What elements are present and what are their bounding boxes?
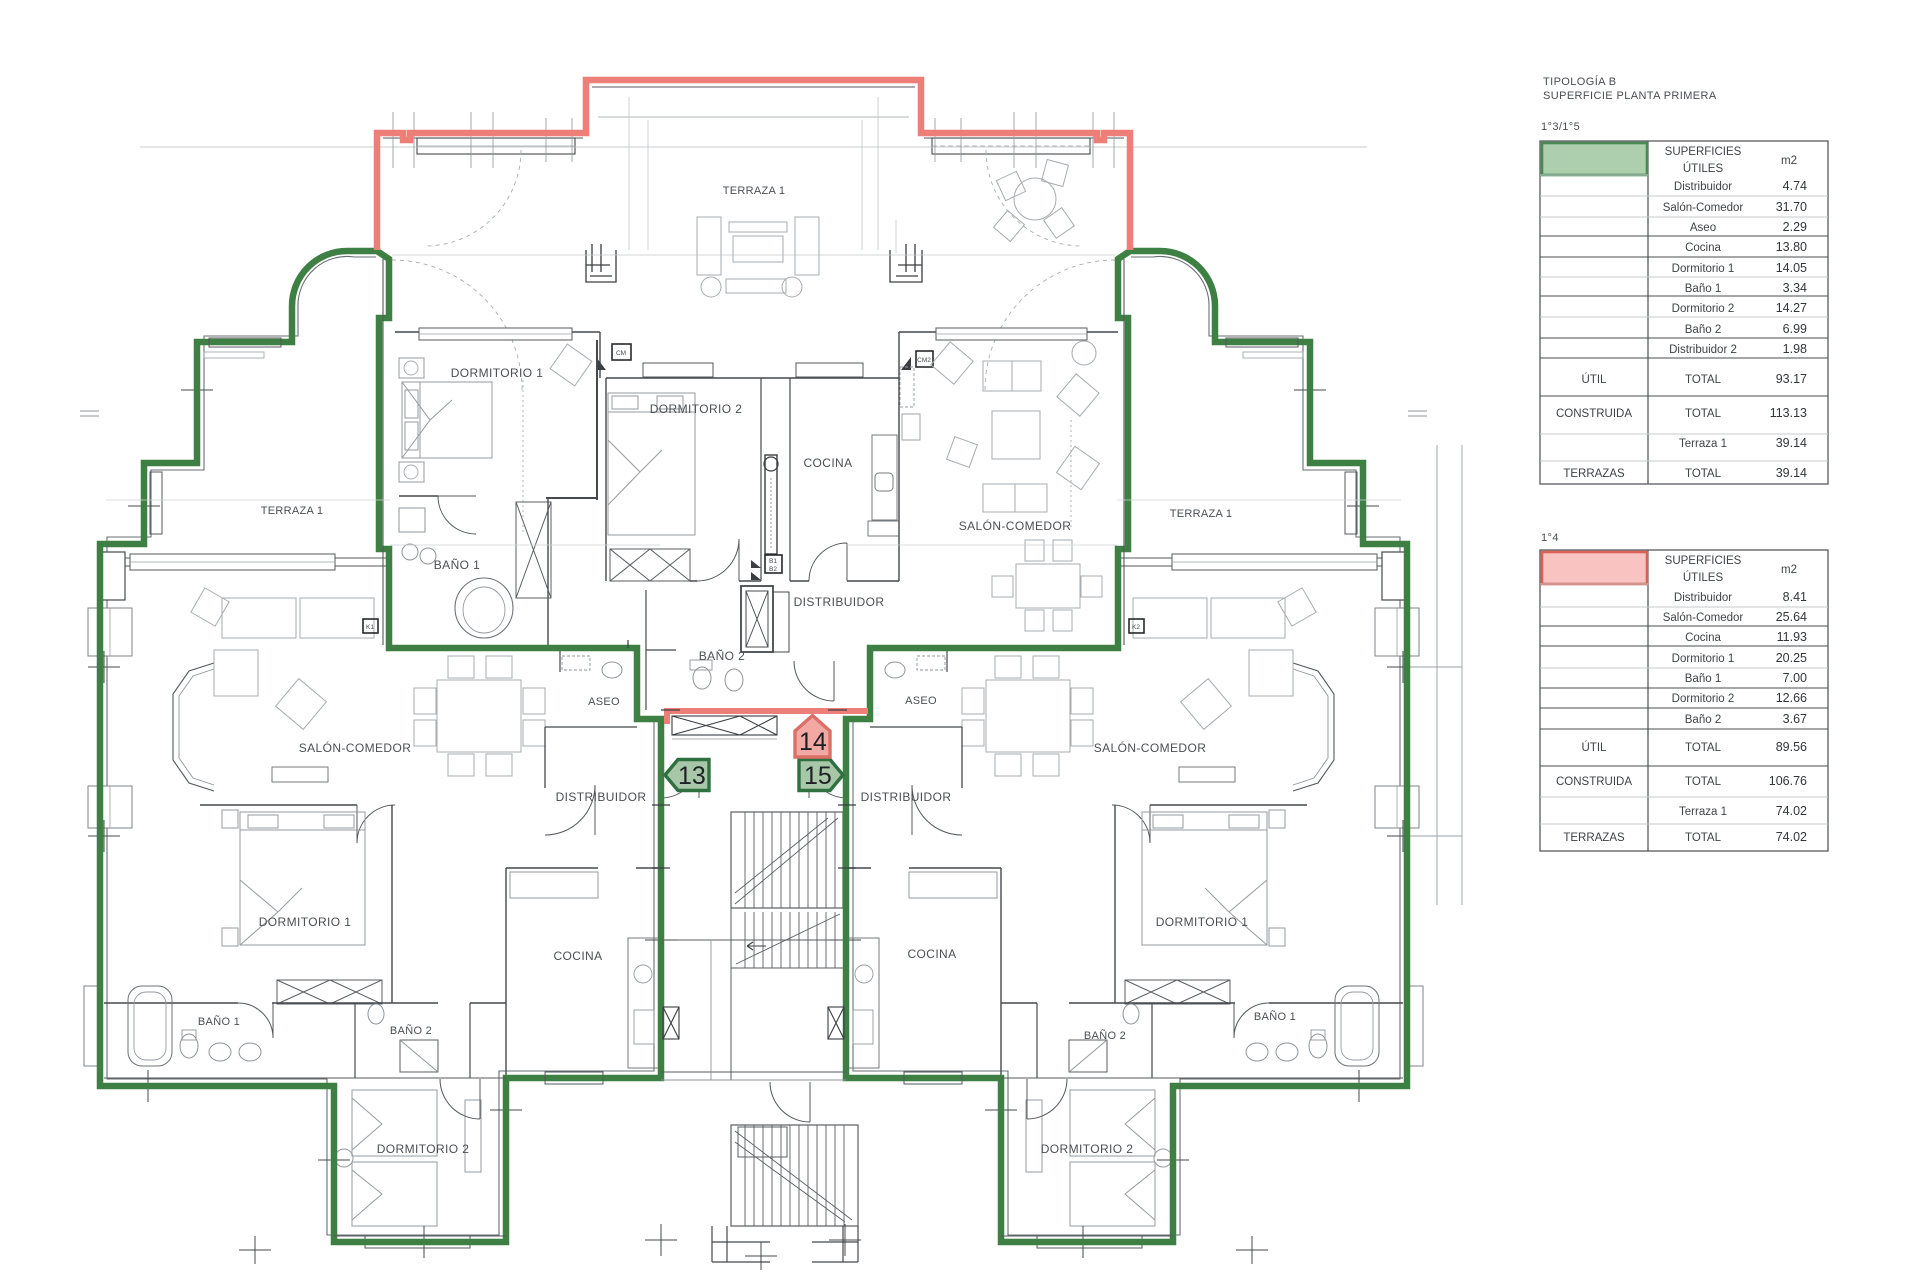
svg-text:BAÑO 1: BAÑO 1 (434, 558, 480, 572)
svg-text:TOTAL: TOTAL (1685, 468, 1722, 480)
svg-text:DORMITORIO 1: DORMITORIO 1 (451, 366, 544, 380)
svg-text:Baño 2: Baño 2 (1685, 324, 1721, 336)
svg-text:93.17: 93.17 (1776, 372, 1807, 386)
svg-text:TOTAL: TOTAL (1685, 776, 1722, 788)
svg-text:SALÓN-COMEDOR: SALÓN-COMEDOR (1094, 740, 1207, 755)
svg-text:CM2: CM2 (917, 357, 931, 364)
svg-text:4.74: 4.74 (1783, 179, 1807, 193)
svg-text:Dormitorio 2: Dormitorio 2 (1672, 303, 1735, 315)
svg-text:BAÑO 1: BAÑO 1 (1254, 1010, 1296, 1023)
svg-text:Distribuidor: Distribuidor (1674, 592, 1732, 604)
svg-text:ÚTIL: ÚTIL (1582, 373, 1608, 386)
svg-text:DORMITORIO 1: DORMITORIO 1 (259, 915, 352, 929)
svg-text:TOTAL: TOTAL (1685, 408, 1722, 420)
svg-text:14: 14 (799, 728, 827, 756)
svg-text:DORMITORIO 2: DORMITORIO 2 (377, 1142, 470, 1156)
svg-text:TIPOLOGÍA B: TIPOLOGÍA B (1543, 75, 1616, 88)
svg-text:DISTRIBUIDOR: DISTRIBUIDOR (861, 790, 952, 804)
svg-text:ÚTILES: ÚTILES (1683, 571, 1724, 584)
svg-text:7.00: 7.00 (1783, 671, 1807, 685)
svg-text:13.80: 13.80 (1776, 240, 1807, 254)
svg-text:74.02: 74.02 (1776, 804, 1807, 818)
svg-text:Dormitorio 1: Dormitorio 1 (1672, 653, 1735, 665)
svg-text:Baño 1: Baño 1 (1685, 283, 1721, 295)
svg-text:1.98: 1.98 (1783, 342, 1807, 356)
svg-text:SUPERFICIE PLANTA PRIMERA: SUPERFICIE PLANTA PRIMERA (1543, 90, 1717, 102)
svg-text:Aseo: Aseo (1690, 222, 1716, 234)
svg-text:Terraza 1: Terraza 1 (1679, 806, 1727, 818)
svg-text:3.34: 3.34 (1783, 281, 1807, 295)
svg-text:12.66: 12.66 (1776, 691, 1807, 705)
svg-text:TOTAL: TOTAL (1685, 374, 1722, 386)
svg-text:TOTAL: TOTAL (1685, 742, 1722, 754)
svg-text:106.76: 106.76 (1769, 774, 1807, 788)
svg-text:6.99: 6.99 (1783, 322, 1807, 336)
svg-text:1°4: 1°4 (1541, 532, 1559, 544)
svg-text:Cocina: Cocina (1685, 242, 1721, 254)
svg-text:K2: K2 (1132, 624, 1140, 631)
svg-text:1°3/1°5: 1°3/1°5 (1541, 121, 1580, 133)
svg-text:11.93: 11.93 (1777, 630, 1807, 644)
svg-text:15: 15 (804, 762, 832, 790)
svg-text:DISTRIBUIDOR: DISTRIBUIDOR (794, 595, 885, 609)
svg-text:14.27: 14.27 (1776, 301, 1807, 315)
svg-text:ÚTILES: ÚTILES (1683, 162, 1724, 175)
svg-text:m2: m2 (1781, 155, 1797, 167)
svg-text:COCINA: COCINA (803, 456, 852, 470)
svg-text:TERRAZAS: TERRAZAS (1563, 832, 1625, 844)
svg-text:TERRAZA 1: TERRAZA 1 (261, 505, 324, 517)
svg-text:TERRAZA 1: TERRAZA 1 (723, 185, 786, 197)
svg-text:BAÑO 2: BAÑO 2 (1084, 1029, 1126, 1042)
svg-text:DORMITORIO 2: DORMITORIO 2 (650, 402, 743, 416)
svg-text:8.41: 8.41 (1783, 590, 1807, 604)
svg-text:Terraza 1: Terraza 1 (1679, 438, 1727, 450)
svg-text:ASEO: ASEO (588, 696, 620, 708)
svg-text:m2: m2 (1781, 564, 1797, 576)
svg-text:DORMITORIO 2: DORMITORIO 2 (1041, 1142, 1134, 1156)
svg-text:TERRAZA 1: TERRAZA 1 (1170, 508, 1233, 520)
svg-text:SALÓN-COMEDOR: SALÓN-COMEDOR (959, 518, 1072, 533)
svg-text:74.02: 74.02 (1776, 830, 1807, 844)
svg-text:2.29: 2.29 (1783, 220, 1807, 234)
svg-text:Distribuidor: Distribuidor (1674, 181, 1732, 193)
svg-text:ASEO: ASEO (905, 695, 937, 707)
svg-text:DISTRIBUIDOR: DISTRIBUIDOR (556, 790, 647, 804)
svg-text:COCINA: COCINA (907, 947, 956, 961)
svg-text:Dormitorio 1: Dormitorio 1 (1672, 263, 1735, 275)
svg-text:113.13: 113.13 (1770, 406, 1807, 420)
svg-text:SALÓN-COMEDOR: SALÓN-COMEDOR (299, 740, 412, 755)
svg-text:TOTAL: TOTAL (1685, 832, 1722, 844)
svg-text:SUPERFICIES: SUPERFICIES (1665, 555, 1742, 567)
svg-text:CONSTRUIDA: CONSTRUIDA (1556, 776, 1632, 788)
svg-text:25.64: 25.64 (1776, 610, 1807, 624)
svg-text:B2: B2 (769, 566, 777, 573)
svg-text:ÚTIL: ÚTIL (1582, 741, 1608, 754)
svg-text:20.25: 20.25 (1776, 651, 1807, 665)
svg-text:3.67: 3.67 (1783, 712, 1807, 726)
svg-text:TERRAZAS: TERRAZAS (1563, 468, 1625, 480)
svg-text:89.56: 89.56 (1776, 740, 1807, 754)
svg-text:Dormitorio 2: Dormitorio 2 (1672, 693, 1735, 705)
svg-text:BAÑO 1: BAÑO 1 (198, 1015, 240, 1028)
svg-text:B1: B1 (769, 558, 777, 565)
svg-text:Distribuidor 2: Distribuidor 2 (1669, 344, 1737, 356)
svg-text:K1: K1 (366, 624, 374, 631)
svg-text:COCINA: COCINA (553, 949, 602, 963)
svg-text:SUPERFICIES: SUPERFICIES (1665, 146, 1742, 158)
svg-text:Salón-Comedor: Salón-Comedor (1663, 202, 1744, 214)
svg-text:39.14: 39.14 (1776, 436, 1807, 450)
svg-text:BAÑO 2: BAÑO 2 (390, 1024, 432, 1037)
svg-text:31.70: 31.70 (1776, 200, 1807, 214)
svg-text:39.14: 39.14 (1776, 466, 1807, 480)
svg-text:CM: CM (616, 350, 626, 357)
svg-text:13: 13 (678, 762, 706, 790)
svg-text:Baño 2: Baño 2 (1685, 714, 1721, 726)
svg-text:14.05: 14.05 (1776, 261, 1807, 275)
svg-text:Baño 1: Baño 1 (1685, 673, 1721, 685)
svg-text:Salón-Comedor: Salón-Comedor (1663, 612, 1744, 624)
svg-text:Cocina: Cocina (1685, 632, 1721, 644)
svg-text:CONSTRUIDA: CONSTRUIDA (1556, 408, 1632, 420)
svg-text:DORMITORIO 1: DORMITORIO 1 (1156, 915, 1249, 929)
svg-text:BAÑO 2: BAÑO 2 (699, 649, 745, 663)
